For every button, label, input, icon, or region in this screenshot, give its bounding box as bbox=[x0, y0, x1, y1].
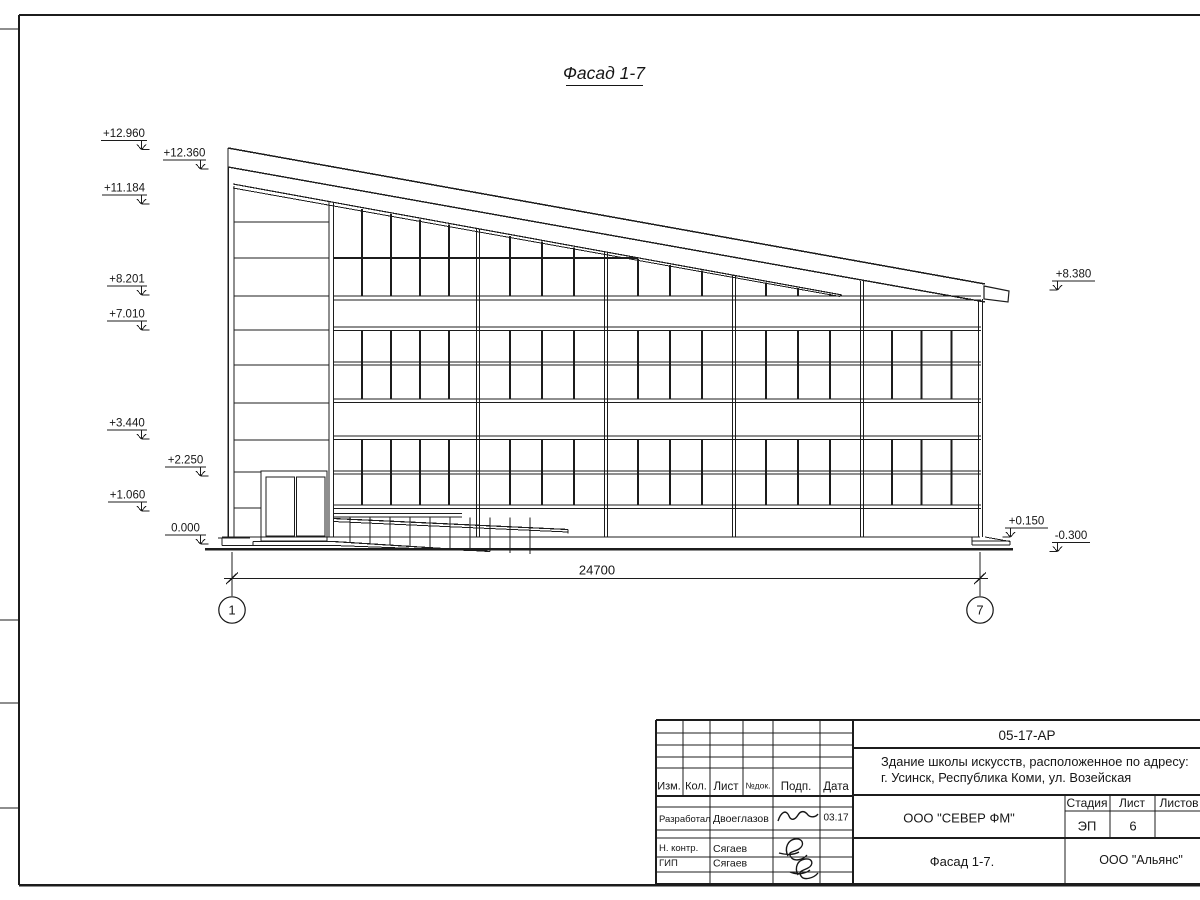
tb-sheet-value: 6 bbox=[1129, 819, 1136, 834]
drawing-sheet: Фасад 1-7 +12.960+12.360+11.184+8.201+7.… bbox=[0, 0, 1200, 900]
elevation-mark: +12.960 bbox=[101, 128, 150, 150]
elevation-mark: +3.440 bbox=[107, 418, 150, 440]
tb-doc-code: 05-17-АР bbox=[998, 728, 1055, 743]
elevation-mark-label: +8.380 bbox=[1056, 269, 1092, 281]
building-facade bbox=[205, 148, 1013, 554]
elevation-mark: -0.300 bbox=[1050, 530, 1091, 552]
tb-company: ООО "СЕВЕР ФМ" bbox=[903, 811, 1015, 826]
tb-sheet-label: Лист bbox=[1119, 796, 1146, 810]
tb-sheets-label: Листов bbox=[1160, 796, 1199, 810]
signature-gip bbox=[790, 859, 818, 879]
elevation-mark-label: +12.960 bbox=[103, 128, 145, 140]
tb-date-developed: 03.17 bbox=[823, 813, 848, 824]
elevation-mark-label: +8.201 bbox=[109, 274, 145, 286]
signature-developed bbox=[778, 812, 818, 821]
elevation-mark-label: +7.010 bbox=[109, 309, 145, 321]
tb-role-developed: Разработал bbox=[659, 814, 711, 825]
elevation-mark-label: +2.250 bbox=[168, 455, 204, 467]
tb-client: ООО "Альянс" bbox=[1099, 853, 1183, 867]
tb-name-developed: Двоеглазов bbox=[713, 813, 769, 825]
elevation-mark: +0.150 bbox=[1003, 516, 1049, 538]
elevation-mark: +11.184 bbox=[102, 183, 150, 205]
elevation-mark-label: +0.150 bbox=[1009, 516, 1045, 528]
title-block: Изм. Кол. Лист №док. Подп. Дата Разработ… bbox=[656, 720, 1200, 885]
view-title-text: Фасад 1-7 bbox=[563, 63, 646, 83]
elevation-mark-label: 0.000 bbox=[171, 523, 200, 535]
elevation-mark: +2.250 bbox=[165, 455, 209, 477]
tb-stage-label: Стадия bbox=[1067, 796, 1108, 810]
tb-view-title: Фасад 1-7. bbox=[930, 854, 994, 869]
elevation-mark: +12.360 bbox=[163, 148, 209, 170]
tb-role-ncontr: Н. контр. bbox=[659, 843, 698, 854]
tb-object-line2: г. Усинск, Республика Коми, ул. Возейска… bbox=[881, 770, 1131, 785]
elevation-mark-label: -0.300 bbox=[1055, 530, 1088, 542]
elevation-mark: 0.000 bbox=[165, 523, 209, 545]
axis-label-1: 1 bbox=[228, 603, 235, 618]
facade-elevation-drawing: Фасад 1-7 +12.960+12.360+11.184+8.201+7.… bbox=[0, 0, 1200, 900]
tb-col-list: Лист bbox=[714, 781, 740, 793]
dimension-line: 24700 bbox=[224, 552, 988, 596]
elevation-mark: +8.380 bbox=[1050, 269, 1096, 291]
tb-stage-value: ЭП bbox=[1078, 819, 1097, 834]
elevation-mark-label: +11.184 bbox=[104, 183, 146, 195]
elevation-mark: +1.060 bbox=[108, 490, 150, 512]
tb-col-kol: Кол. bbox=[685, 781, 707, 793]
tb-role-gip: ГИП bbox=[659, 858, 678, 869]
tb-col-podp: Подп. bbox=[781, 781, 812, 793]
axis-label-7: 7 bbox=[976, 603, 983, 618]
view-title: Фасад 1-7 bbox=[563, 63, 646, 86]
elevation-mark: +8.201 bbox=[107, 274, 150, 296]
dimension-value: 24700 bbox=[579, 563, 615, 578]
tb-name-ncontr: Сягаев bbox=[713, 843, 748, 855]
tb-col-ndok: №док. bbox=[746, 781, 771, 791]
elevation-mark-label: +3.440 bbox=[109, 418, 145, 430]
elevation-mark: +7.010 bbox=[107, 309, 150, 331]
tb-col-data: Дата bbox=[823, 781, 849, 793]
tb-object-line1: Здание школы искусств, расположенное по … bbox=[881, 754, 1189, 769]
column-axes: 1 7 bbox=[219, 597, 993, 623]
elevation-mark-label: +12.360 bbox=[164, 148, 206, 160]
tb-name-gip: Сягаев bbox=[713, 858, 748, 870]
elevation-mark-label: +1.060 bbox=[110, 490, 146, 502]
tb-col-izm: Изм. bbox=[657, 781, 681, 793]
